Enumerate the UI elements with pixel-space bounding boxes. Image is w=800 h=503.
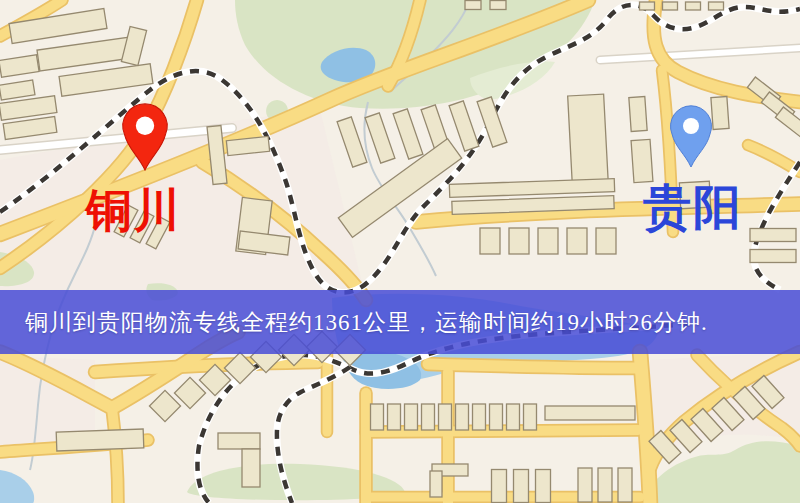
map-screenshot: 铜川 贵阳 铜川到贵阳物流专线全程约1361公里，运输时间约19小时26分钟. (0, 0, 800, 503)
map-canvas: 铜川 贵阳 (0, 0, 800, 503)
origin-label: 铜川 (84, 185, 182, 236)
route-info-banner: 铜川到贵阳物流专线全程约1361公里，运输时间约19小时26分钟. (0, 290, 800, 354)
map-base-layers (0, 0, 800, 503)
destination-label: 贵阳 (643, 181, 743, 234)
route-info-text: 铜川到贵阳物流专线全程约1361公里，运输时间约19小时26分钟. (25, 307, 708, 338)
